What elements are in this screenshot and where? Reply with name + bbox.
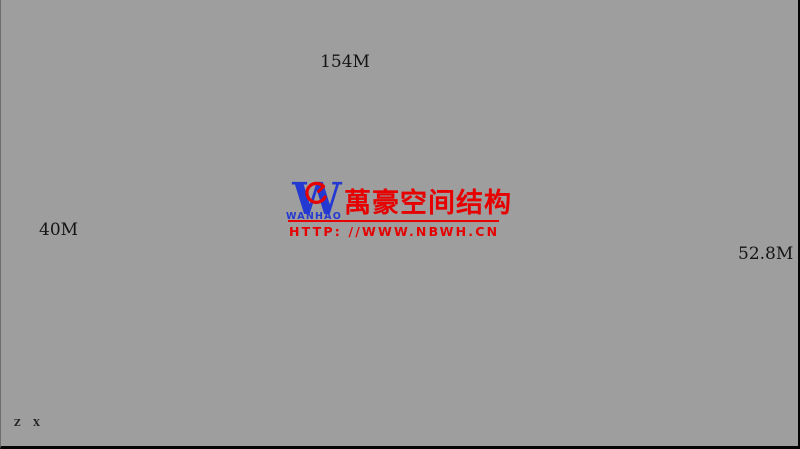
watermark-brand-text: 萬豪空间结构: [344, 189, 512, 219]
cad-viewport[interactable]: 154M 40M 52.8M W WANHAO 萬豪空间结构 HTTP: //W…: [0, 0, 800, 449]
watermark-url: HTTP: //WWW.NBWH.CN: [289, 224, 499, 239]
axis-label-z: Z: [14, 419, 21, 429]
dimension-label-right-height: 52.8M: [738, 246, 793, 263]
wanhao-logo-icon: W: [284, 176, 350, 216]
dimension-label-width: 154M: [317, 54, 373, 71]
axis-label-x: X: [33, 419, 40, 429]
dimension-label-left-height: 40M: [39, 222, 78, 239]
watermark-underline: [288, 220, 499, 222]
